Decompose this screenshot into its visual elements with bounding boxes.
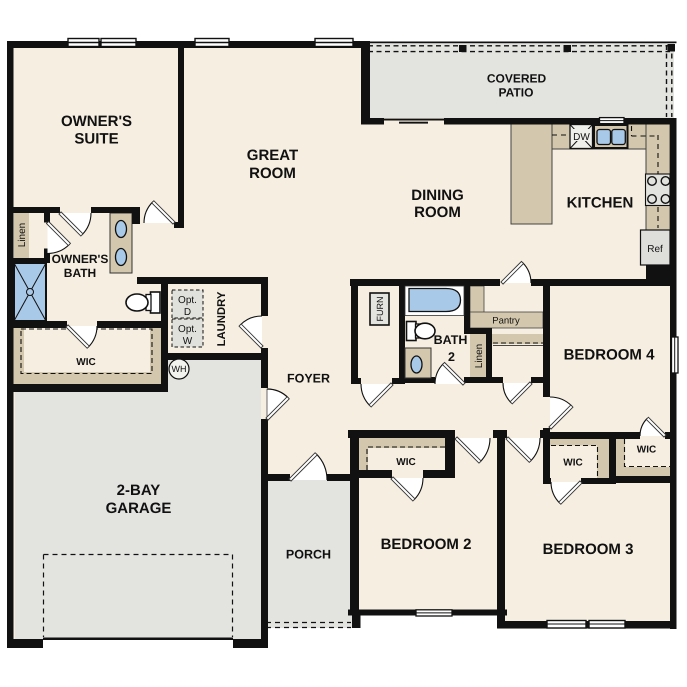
svg-text:WIC: WIC — [76, 357, 95, 368]
svg-text:WIC: WIC — [563, 458, 582, 469]
svg-text:Linen: Linen — [17, 223, 28, 247]
svg-text:FURN: FURN — [375, 297, 385, 322]
svg-text:Ref: Ref — [647, 244, 663, 255]
svg-text:COVERED: COVERED — [487, 72, 547, 86]
svg-text:DW: DW — [573, 132, 590, 143]
svg-text:Opt.: Opt. — [178, 295, 197, 306]
svg-text:FOYER: FOYER — [287, 372, 330, 386]
svg-text:PORCH: PORCH — [286, 548, 331, 562]
svg-text:DINING: DINING — [411, 187, 464, 204]
svg-text:2: 2 — [448, 350, 455, 364]
svg-text:WIC: WIC — [637, 445, 656, 456]
svg-text:D: D — [184, 307, 191, 318]
svg-text:BEDROOM 2: BEDROOM 2 — [381, 536, 472, 553]
svg-text:Pantry: Pantry — [492, 316, 520, 327]
svg-text:KITCHEN: KITCHEN — [567, 195, 634, 212]
svg-text:PATIO: PATIO — [499, 86, 534, 100]
svg-text:GARAGE: GARAGE — [106, 500, 172, 517]
svg-text:Opt.: Opt. — [178, 324, 197, 335]
svg-text:ROOM: ROOM — [249, 165, 296, 182]
svg-text:BATH: BATH — [434, 333, 468, 347]
svg-text:Linen: Linen — [474, 344, 485, 368]
svg-text:BEDROOM 3: BEDROOM 3 — [543, 541, 634, 558]
svg-text:WIC: WIC — [396, 457, 415, 468]
svg-text:2-BAY: 2-BAY — [117, 482, 161, 499]
svg-text:OWNER'S: OWNER'S — [52, 252, 109, 266]
svg-text:BEDROOM 4: BEDROOM 4 — [564, 347, 656, 364]
svg-text:OWNER'S: OWNER'S — [61, 113, 132, 130]
svg-text:LAUNDRY: LAUNDRY — [216, 291, 228, 346]
svg-text:GREAT: GREAT — [247, 147, 298, 164]
svg-text:SUITE: SUITE — [74, 131, 118, 148]
svg-text:WH: WH — [172, 364, 187, 374]
svg-text:ROOM: ROOM — [414, 204, 461, 221]
svg-text:BATH: BATH — [64, 266, 96, 280]
svg-text:W: W — [183, 336, 193, 347]
